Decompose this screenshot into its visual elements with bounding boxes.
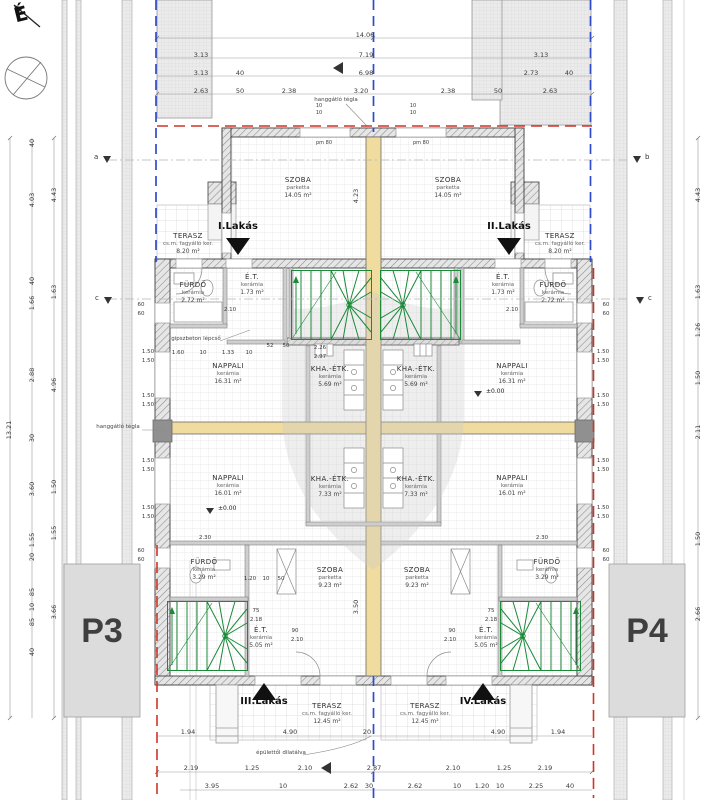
unit-label-3: III.Lakás xyxy=(240,696,287,707)
room-name: É.T. xyxy=(240,273,264,282)
room-finish: cs.m. fagyálló ker. xyxy=(400,711,450,718)
level-marker-left: ±0.00 xyxy=(218,505,236,512)
dim: 40 xyxy=(236,69,244,77)
room-area: 16.31 m² xyxy=(212,378,244,386)
unit-label-2: II.Lakás xyxy=(487,221,531,232)
room-area: 16.01 m² xyxy=(212,490,244,498)
room-finish: kerámia xyxy=(540,290,567,297)
room-nappali-upper-left: NAPPALI kerámia 16.31 m² xyxy=(212,362,244,386)
dim-lintel: pm 80 xyxy=(413,140,429,146)
dim: 1.94 xyxy=(551,728,565,736)
room-area: 7.33 m² xyxy=(397,491,435,499)
room-terasz-top-right: TERASZ cs.m. fagyálló ker. 8.20 m² xyxy=(535,232,585,256)
room-finish: kerámia xyxy=(240,282,264,289)
dim: 85 xyxy=(28,618,36,626)
room-area: 16.01 m² xyxy=(496,490,528,498)
room-szoba-bottom-right: SZOBA parketta 9.23 m² xyxy=(404,566,430,590)
dim: 10 xyxy=(246,350,253,356)
room-finish: parketta xyxy=(404,575,430,582)
dim: 2.66 xyxy=(694,607,702,621)
dim: 75 xyxy=(253,608,260,614)
room-terasz-bottom-right: TERASZ cs.m. fagyálló ker. 12.45 m² xyxy=(400,702,450,726)
dim-window: 1.50 xyxy=(597,402,609,408)
room-nappali-upper-right: NAPPALI kerámia 16.31 m² xyxy=(496,362,528,386)
dim-window: 1.50 xyxy=(142,505,154,511)
room-szoba-top-right: SZOBA parketta 14.05 m² xyxy=(434,176,461,200)
room-name: FÜRDŐ xyxy=(540,281,567,290)
dim-window: 1.50 xyxy=(142,393,154,399)
room-area: 14.05 m² xyxy=(434,192,461,200)
axis-marker-c-left: c xyxy=(95,294,99,302)
dim-60: 60 xyxy=(603,548,610,554)
room-name: É.T. xyxy=(474,626,498,635)
room-furdo-bottom-right: FÜRDŐ kerámia 3.29 m² xyxy=(534,558,561,582)
dim-wing-height: 4.23 xyxy=(352,189,360,203)
dim-window: 1.50 xyxy=(142,402,154,408)
dim-window: 1.50 xyxy=(597,514,609,520)
room-finish: parketta xyxy=(317,575,343,582)
room-finish: parketta xyxy=(434,185,461,192)
room-finish: kerámia xyxy=(180,290,207,297)
dim: 75 xyxy=(488,608,495,614)
room-name: SZOBA xyxy=(284,176,311,185)
dim: 1.63 xyxy=(50,285,58,299)
dim-window: 1.50 xyxy=(597,349,609,355)
room-area: 9.23 m² xyxy=(317,582,343,590)
dim: 2.30 xyxy=(199,535,211,541)
room-kha-upper-right: KHA.-ÉTK. kerámia 5.69 m² xyxy=(397,365,435,389)
dim-10: 10 xyxy=(316,103,322,109)
room-area: 8.20 m² xyxy=(535,248,585,256)
dim: 6.98 xyxy=(359,69,373,77)
dim: 4.96 xyxy=(50,378,58,392)
room-finish: kerámia xyxy=(191,567,218,574)
dim-door: 2.10 xyxy=(444,637,456,643)
dim-60: 60 xyxy=(138,302,145,308)
dim: 1.50 xyxy=(50,480,58,494)
room-et-mid-left: É.T. kerámia 1.73 m² xyxy=(240,273,264,297)
dim-window: 1.50 xyxy=(597,458,609,464)
room-area: 1.73 m² xyxy=(491,289,515,297)
room-nappali-lower-right: NAPPALI kerámia 16.01 m² xyxy=(496,474,528,498)
dim: 20 xyxy=(363,728,371,736)
dim-window: 1.50 xyxy=(142,358,154,364)
dim: 2.63 xyxy=(194,87,208,95)
dim: 4.03 xyxy=(28,193,36,207)
dim-window: 1.50 xyxy=(597,505,609,511)
dim: 1.50 xyxy=(694,532,702,546)
room-area: 12.45 m² xyxy=(302,718,352,726)
dim: 3.20 xyxy=(354,87,368,95)
dim-window: 1.50 xyxy=(597,358,609,364)
dim: 10 xyxy=(453,782,461,790)
dim: 2.62 xyxy=(344,782,358,790)
dim-room-height: 3.50 xyxy=(352,600,360,614)
dim: 3.60 xyxy=(28,482,36,496)
dim: 10 xyxy=(279,782,287,790)
room-furdo-bottom-left: FÜRDŐ kerámia 3.29 m² xyxy=(191,558,218,582)
dim-window: 1.50 xyxy=(142,458,154,464)
dim: 10 xyxy=(263,576,270,582)
dim: 3.13 xyxy=(194,51,208,59)
dim: 40 xyxy=(28,277,36,285)
room-furdo-mid-left: FÜRDŐ kerámia 2.72 m² xyxy=(180,281,207,305)
dim: 1.20 xyxy=(475,782,489,790)
dim: 2.10 xyxy=(446,764,460,772)
dim: 1.26 xyxy=(694,323,702,337)
dim: 1.66 xyxy=(28,296,36,310)
dim-60: 60 xyxy=(138,311,145,317)
room-name: FÜRDŐ xyxy=(191,558,218,567)
floor-plan: É P3 P4 I.Lakás II.Lakás III.Lakás IV.La… xyxy=(0,0,709,800)
dim-door: 2.10 xyxy=(291,637,303,643)
dim: 2.38 xyxy=(441,87,455,95)
room-finish: kerámia xyxy=(397,374,435,381)
dim: 2.11 xyxy=(694,425,702,439)
dim: 2.18 xyxy=(250,617,262,623)
room-szoba-top-left: SZOBA parketta 14.05 m² xyxy=(284,176,311,200)
dim-lintel: pm 80 xyxy=(316,140,332,146)
room-name: TERASZ xyxy=(400,702,450,711)
room-finish: kerámia xyxy=(397,484,435,491)
dim: 1.20 xyxy=(244,576,256,582)
room-area: 16.31 m² xyxy=(496,378,528,386)
room-finish: kerámia xyxy=(311,374,349,381)
dim: 4.43 xyxy=(694,188,702,202)
dim-60: 60 xyxy=(603,557,610,563)
room-area: 5.69 m² xyxy=(311,381,349,389)
dim: 1.25 xyxy=(497,764,511,772)
room-name: TERASZ xyxy=(535,232,585,241)
plan-geometry xyxy=(0,0,709,800)
dim-window: 1.50 xyxy=(597,467,609,473)
dim: 20 xyxy=(28,553,36,561)
dim: 2.62 xyxy=(408,782,422,790)
dim: 50 xyxy=(283,343,290,349)
dim: 50 xyxy=(494,87,502,95)
room-name: É.T. xyxy=(249,626,273,635)
dim: 2.73 xyxy=(524,69,538,77)
room-nappali-lower-left: NAPPALI kerámia 16.01 m² xyxy=(212,474,244,498)
dim-window: 1.50 xyxy=(142,514,154,520)
parcel-label-p3: P3 xyxy=(81,612,123,651)
dim: 2.10 xyxy=(298,764,312,772)
room-kha-upper-left: KHA.-ÉTK. kerámia 5.69 m² xyxy=(311,365,349,389)
room-terasz-bottom-left: TERASZ cs.m. fagyálló ker. 12.45 m² xyxy=(302,702,352,726)
room-terasz-top-left: TERASZ cs.m. fagyálló ker. 8.20 m² xyxy=(163,232,213,256)
room-finish: kerámia xyxy=(534,567,561,574)
dim-door: 2.10 xyxy=(506,307,518,313)
dim: 40 xyxy=(566,782,574,790)
dim: 50 xyxy=(236,87,244,95)
dim-10: 10 xyxy=(316,110,322,116)
room-name: KHA.-ÉTK. xyxy=(311,365,349,374)
dim-window: 1.50 xyxy=(142,467,154,473)
dim-60: 60 xyxy=(138,557,145,563)
room-name: NAPPALI xyxy=(496,362,528,371)
dim: 3.13 xyxy=(534,51,548,59)
dim: 7.19 xyxy=(359,51,373,59)
dim: 1.25 xyxy=(245,764,259,772)
room-area: 1.73 m² xyxy=(240,289,264,297)
axis-marker-c-right: c xyxy=(648,294,652,302)
room-et-mid-right: É.T. kerámia 1.73 m² xyxy=(491,273,515,297)
room-finish: kerámia xyxy=(311,484,349,491)
dim: 4.90 xyxy=(283,728,297,736)
dim: 40 xyxy=(28,139,36,147)
dim: 1.94 xyxy=(181,728,195,736)
dim: 1.50 xyxy=(694,371,702,385)
axis-marker-b: b xyxy=(645,153,649,161)
room-finish: kerámia xyxy=(491,282,515,289)
dim-top-total: 14.06 xyxy=(356,31,375,39)
room-name: NAPPALI xyxy=(212,474,244,483)
room-finish: kerámia xyxy=(249,635,273,642)
dim: 10 xyxy=(28,603,36,611)
dim-left-total: 13.21 xyxy=(5,421,13,440)
room-furdo-mid-right: FÜRDŐ kerámia 2.72 m² xyxy=(540,281,567,305)
room-finish: kerámia xyxy=(474,635,498,642)
room-kha-lower-left: KHA.-ÉTK. kerámia 7.33 m² xyxy=(311,475,349,499)
room-name: É.T. xyxy=(491,273,515,282)
parcel-label-p4: P4 xyxy=(626,612,668,651)
dim-10: 10 xyxy=(410,103,416,109)
room-name: TERASZ xyxy=(302,702,352,711)
dim: 40 xyxy=(28,648,36,656)
dim-10: 10 xyxy=(410,110,416,116)
dim: 3.95 xyxy=(205,782,219,790)
room-et-bottom-left: É.T. kerámia 5.05 m² xyxy=(249,626,273,650)
note-stair: gipszbeton lépcső xyxy=(171,336,221,342)
room-finish: kerámia xyxy=(212,483,244,490)
room-name: SZOBA xyxy=(434,176,461,185)
room-area: 2.72 m² xyxy=(180,297,207,305)
unit-label-1: I.Lakás xyxy=(218,221,258,232)
dim: 1.33 xyxy=(222,350,234,356)
dim-door: 2.10 xyxy=(224,307,236,313)
note-dilatation: épülettől dilatálva xyxy=(256,750,306,756)
room-name: SZOBA xyxy=(317,566,343,575)
room-name: SZOBA xyxy=(404,566,430,575)
room-area: 14.05 m² xyxy=(284,192,311,200)
room-name: NAPPALI xyxy=(496,474,528,483)
room-name: FÜRDŐ xyxy=(534,558,561,567)
dim: 50 xyxy=(278,576,285,582)
room-name: KHA.-ÉTK. xyxy=(311,475,349,484)
room-area: 3.29 m² xyxy=(191,574,218,582)
dim-window: 1.50 xyxy=(142,349,154,355)
room-area: 3.29 m² xyxy=(534,574,561,582)
room-name: NAPPALI xyxy=(212,362,244,371)
room-area: 7.33 m² xyxy=(311,491,349,499)
dim: 2.38 xyxy=(282,87,296,95)
dim: 2.88 xyxy=(28,368,36,382)
dim: 1.55 xyxy=(50,526,58,540)
dim-door: 90 xyxy=(292,628,299,634)
room-szoba-bottom-left: SZOBA parketta 9.23 m² xyxy=(317,566,343,590)
room-finish: parketta xyxy=(284,185,311,192)
dim: 2.26 xyxy=(314,345,326,351)
room-area: 9.23 m² xyxy=(404,582,430,590)
dim: 30 xyxy=(28,434,36,442)
dim: 2.18 xyxy=(485,617,497,623)
dim: 2.63 xyxy=(543,87,557,95)
room-area: 5.05 m² xyxy=(249,642,273,650)
dim: 2.30 xyxy=(536,535,548,541)
room-area: 5.05 m² xyxy=(474,642,498,650)
dim: 10 xyxy=(200,350,207,356)
dim: 30 xyxy=(365,782,373,790)
room-area: 5.69 m² xyxy=(397,381,435,389)
dim-60: 60 xyxy=(603,302,610,308)
room-name: TERASZ xyxy=(163,232,213,241)
dim: 1.55 xyxy=(28,533,36,547)
room-et-bottom-right: É.T. kerámia 5.05 m² xyxy=(474,626,498,650)
dim: 52 xyxy=(267,343,274,349)
dim: 1.60 xyxy=(172,350,184,356)
dim: 3.13 xyxy=(194,69,208,77)
dim: 4.90 xyxy=(491,728,505,736)
room-name: KHA.-ÉTK. xyxy=(397,365,435,374)
room-kha-lower-right: KHA.-ÉTK. kerámia 7.33 m² xyxy=(397,475,435,499)
dim: 40 xyxy=(565,69,573,77)
room-area: 8.20 m² xyxy=(163,248,213,256)
room-finish: cs.m. fagyálló ker. xyxy=(302,711,352,718)
room-name: FÜRDŐ xyxy=(180,281,207,290)
dim: 3.66 xyxy=(50,605,58,619)
dim: 85 xyxy=(28,588,36,596)
room-finish: cs.m. fagyálló ker. xyxy=(163,241,213,248)
dim: 2.25 xyxy=(529,782,543,790)
dim: 1.63 xyxy=(694,285,702,299)
dim: 2.19 xyxy=(538,764,552,772)
dim: 10 xyxy=(496,782,504,790)
dim-door: 90 xyxy=(449,628,456,634)
room-finish: kerámia xyxy=(496,371,528,378)
room-area: 12.45 m² xyxy=(400,718,450,726)
dim: 2.97 xyxy=(314,354,326,360)
room-area: 2.72 m² xyxy=(540,297,567,305)
room-finish: kerámia xyxy=(212,371,244,378)
unit-label-4: IV.Lakás xyxy=(460,696,506,707)
room-finish: cs.m. fagyálló ker. xyxy=(535,241,585,248)
level-marker-right: ±0.00 xyxy=(486,388,504,395)
dim-60: 60 xyxy=(603,311,610,317)
dim: 2.19 xyxy=(184,764,198,772)
room-name: KHA.-ÉTK. xyxy=(397,475,435,484)
note-party-wall-left: hanggátló tégla xyxy=(96,424,139,430)
dim-window: 1.50 xyxy=(597,393,609,399)
room-finish: kerámia xyxy=(496,483,528,490)
axis-marker-a: a xyxy=(94,153,98,161)
dim: 2.87 xyxy=(367,764,381,772)
dim: 4.43 xyxy=(50,188,58,202)
dim-60: 60 xyxy=(138,548,145,554)
